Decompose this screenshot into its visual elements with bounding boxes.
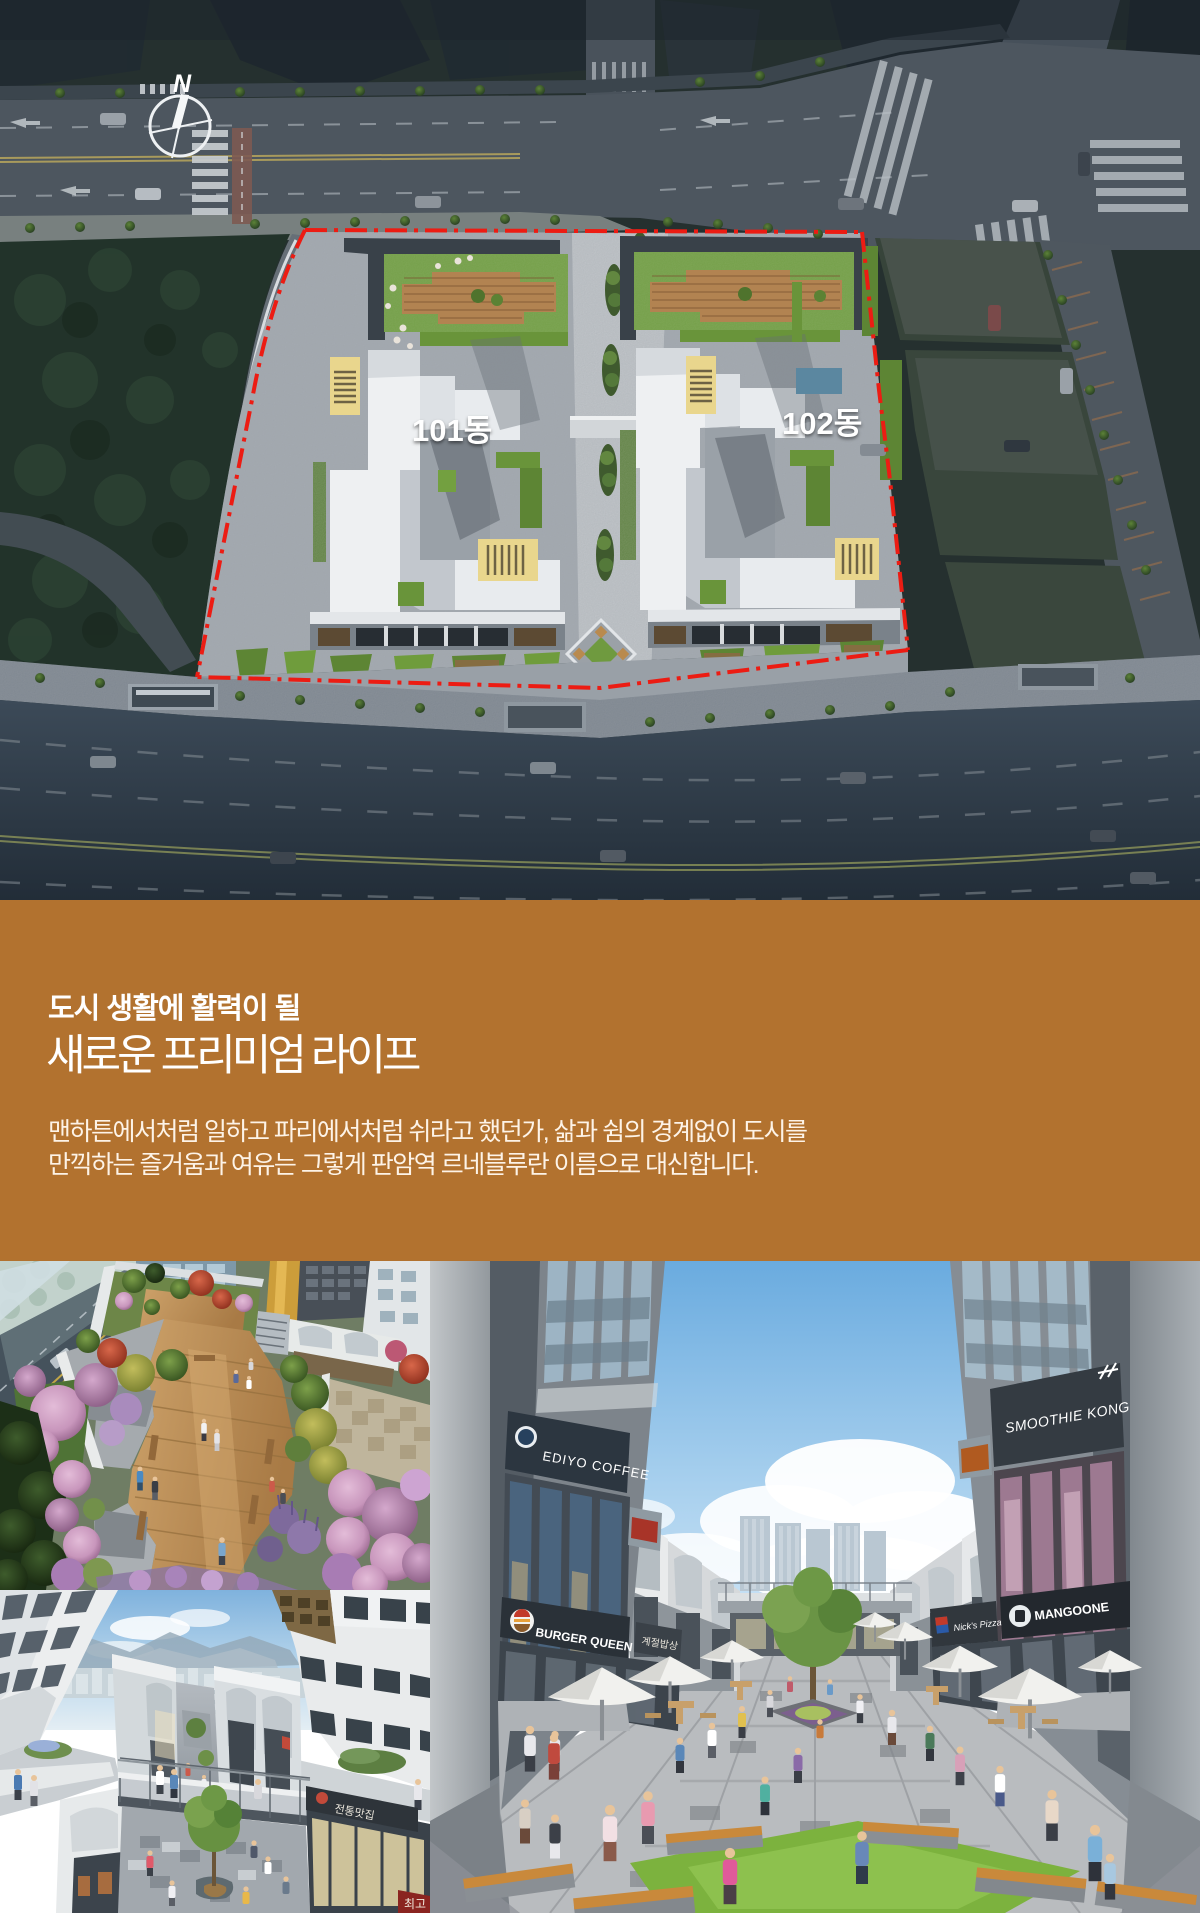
svg-text:N: N [173,70,192,98]
svg-text:101동: 101동 [412,413,492,448]
svg-text:최고: 최고 [404,1897,426,1911]
svg-text:102동: 102동 [782,406,862,441]
